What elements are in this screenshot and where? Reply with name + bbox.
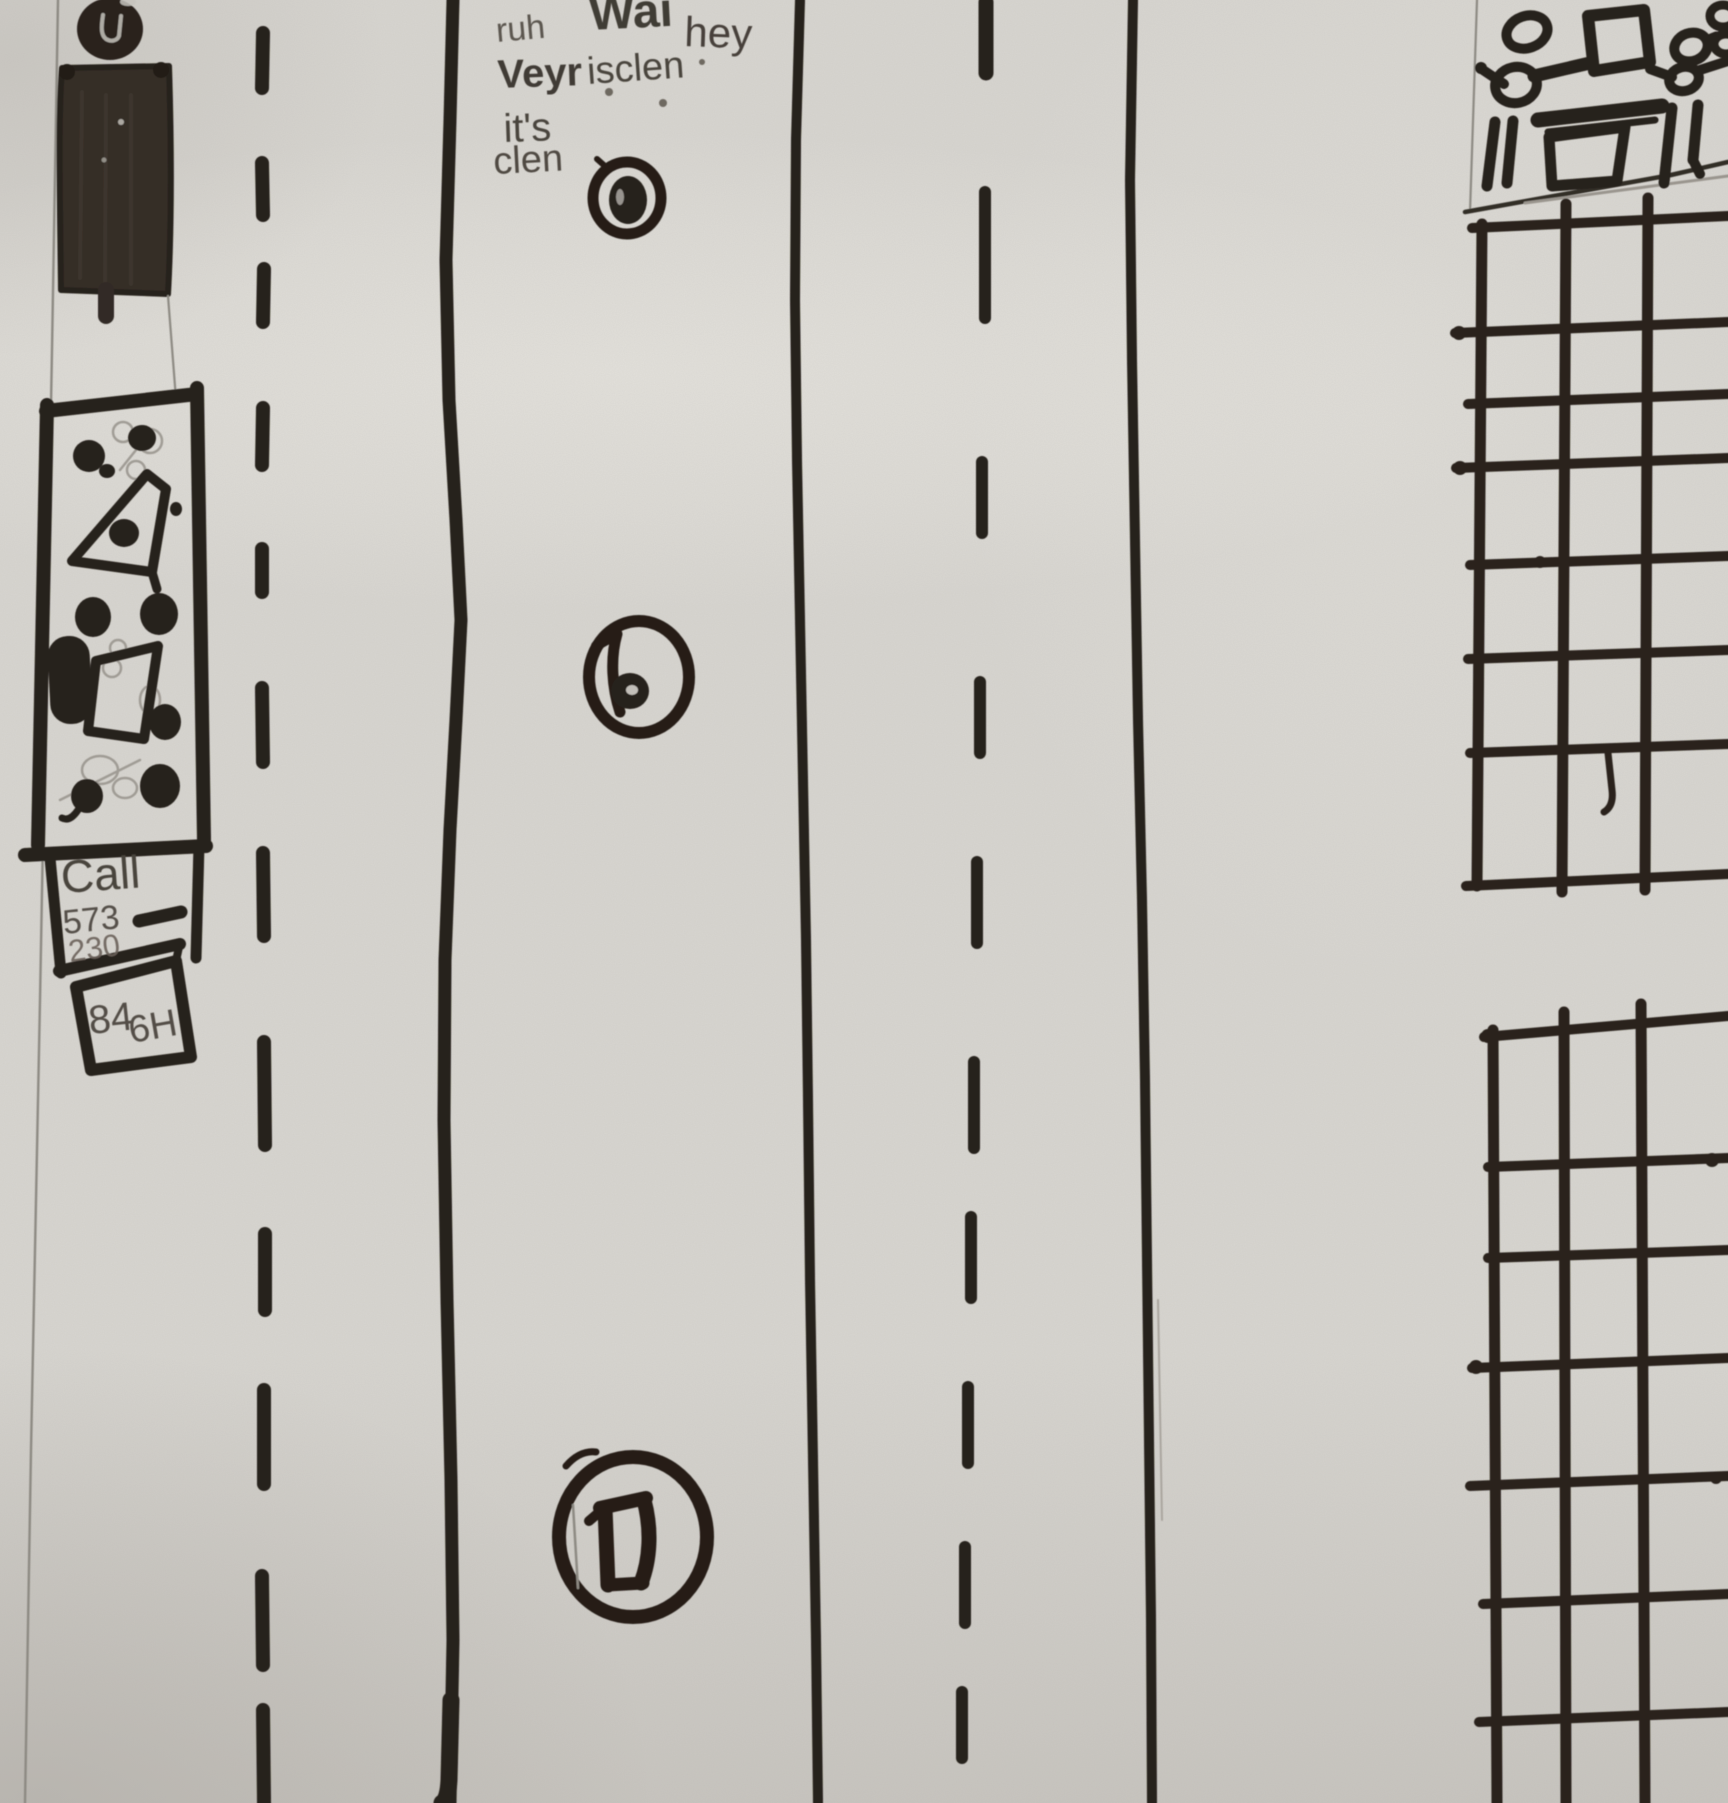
svg-text:Veyr: Veyr <box>497 50 583 97</box>
svg-text:hey: hey <box>684 8 753 57</box>
svg-text:Call: Call <box>59 846 142 903</box>
svg-text:Wai: Wai <box>588 0 674 41</box>
svg-text:ruh: ruh <box>494 8 546 50</box>
svg-text:clen: clen <box>492 137 564 183</box>
svg-text:230: 230 <box>66 927 122 969</box>
svg-text:6H: 6H <box>125 1002 180 1052</box>
svg-text:isclen: isclen <box>586 44 686 93</box>
